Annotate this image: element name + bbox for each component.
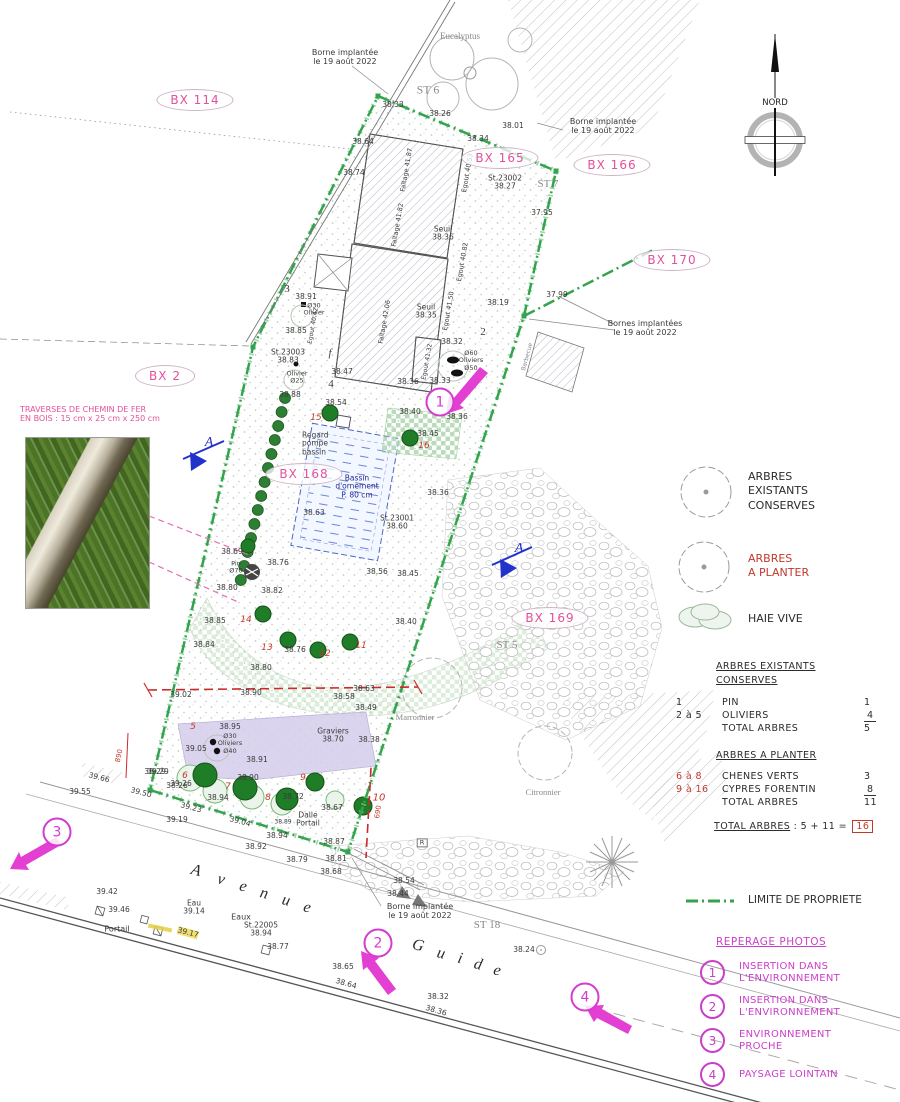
plan-label: St.23002 38.27 (488, 175, 522, 192)
plan-label: 38.40 (399, 408, 420, 416)
bx-label: BX 170 (633, 249, 710, 271)
plan-label: 38.44 (387, 890, 408, 898)
plan-label: 38.64 (352, 138, 373, 146)
pond-pump-pit (336, 415, 351, 428)
compass-label: NORD (760, 98, 790, 108)
plan-label: 38.36 (446, 413, 467, 421)
photo-legend-items: 1INSERTION DANS L'ENVIRONNEMENT2INSERTIO… (700, 960, 840, 1087)
plan-label: Portail (104, 926, 129, 935)
photo-marker-3: 3 (43, 818, 72, 847)
plan-label: Seuil 38.36 (432, 226, 453, 243)
plan-label: Olivier Ø25 (286, 371, 307, 386)
photo-legend-label: PAYSAGE LOINTAIN (739, 1069, 838, 1081)
plan-label: 38.58 (333, 693, 354, 701)
photo-legend-number-icon: 3 (700, 1028, 725, 1053)
plan-label: 38.01 (502, 122, 523, 130)
plan-label: 15 (310, 413, 321, 423)
plan-label: 38.63 (303, 509, 324, 517)
plan-label: Bornes implantées le 19 août 2022 (608, 320, 683, 338)
plan-label: Borne implantée le 19 août 2022 (387, 903, 453, 921)
photo-legend-label: INSERTION DANS L'ENVIRONNEMENT (739, 995, 840, 1018)
plan-label: St.23003 38.83 (271, 349, 305, 366)
plan-label: Eau 39.14 (183, 900, 204, 917)
photo-legend-label: ENVIRONNEMENT PROCHE (739, 1029, 831, 1052)
plan-label: Ø30 Oliviers Ø40 (218, 733, 242, 755)
plan-label: 38.94 (207, 794, 228, 802)
site-plan: Borne implantée le 19 août 2022Eucalyptu… (0, 0, 900, 1102)
plan-label: 38.87 (323, 838, 344, 846)
plan-label: 38.34 (467, 135, 488, 143)
plan-label: 13 (261, 643, 272, 653)
plan-label: 38.89 (274, 820, 291, 827)
plan-label: 38.54 (393, 877, 414, 885)
plan-label: 38.63 (353, 685, 374, 693)
plan-label: 38.90 (237, 774, 258, 782)
legend-boundary-label: LIMITE DE PROPRIETE (748, 894, 898, 908)
legend-existing-tree-icon (681, 467, 731, 517)
plan-label: 38.76 (267, 559, 288, 567)
bx-label: BX 168 (265, 463, 342, 485)
plan-label: f (328, 347, 331, 359)
plan-label: Borne implantée le 19 août 2022 (312, 49, 378, 67)
plan-label: ST 5 (497, 639, 518, 651)
plan-label: 38.40 (395, 618, 416, 626)
plan-label: 37.95 (531, 209, 552, 217)
photo-marker-1: 1 (426, 388, 455, 417)
table-row: 1PIN1 (676, 696, 898, 709)
citronnier-tree (518, 726, 572, 780)
plan-label: 39.46 (108, 906, 129, 914)
plan-label: 38.79 (286, 856, 307, 864)
stone-area-st5 (442, 468, 662, 740)
plan-label: R (417, 838, 428, 847)
plan-label: 8 (265, 793, 271, 803)
section-marker-a1 (183, 441, 224, 471)
plan-label: 38.67 (321, 804, 342, 812)
plan-label: 7 (225, 782, 231, 792)
plan-label: 38.38 (358, 736, 379, 744)
plan-label: 39.19 (166, 816, 187, 824)
plan-label: A (205, 435, 214, 451)
table-section-title: ARBRES EXISTANTS CONSERVES (716, 660, 898, 689)
photo-legend-item-3: 3ENVIRONNEMENT PROCHE (700, 1028, 840, 1053)
table-total-row: TOTAL ARBRES : 5 + 11 = 16 (714, 821, 898, 832)
neighbour-hatch-north (508, 0, 700, 162)
plan-label: Seuil 38.35 (415, 304, 436, 321)
plan-label: A (515, 541, 524, 557)
photo-inset (25, 437, 150, 609)
plan-label: 3 (284, 283, 290, 295)
plan-label: Regard pompe bassin (302, 431, 329, 456)
plan-label: 38.95 (219, 723, 240, 731)
legend-hedge-label: HAIE VIVE (748, 612, 868, 626)
plan-label: 38.91 (246, 756, 267, 764)
plan-label: 38.19 (487, 299, 508, 307)
plan-label: 38.49 (355, 704, 376, 712)
plan-label: 38.36 (427, 489, 448, 497)
plan-label: 38.33 (429, 377, 450, 385)
plan-label: ST 18 (474, 919, 500, 931)
plan-label: 16 (418, 441, 429, 451)
plan-label: 38.82 (261, 587, 282, 595)
plan-label: 38.68 (320, 868, 341, 876)
plan-label: 38.33 (382, 101, 403, 109)
plan-label: 38.32 (441, 338, 462, 346)
photo-legend-number-icon: 1 (700, 960, 725, 985)
photo-legend-item-4: 4PAYSAGE LOINTAIN (700, 1062, 840, 1087)
plan-label: 4 (328, 378, 334, 390)
bx-label: BX 2 (135, 365, 195, 387)
plan-label: 39.05 (185, 745, 206, 753)
plan-label: ST 7 (538, 178, 559, 190)
plan-label: Borne implantée le 19 août 2022 (570, 118, 636, 136)
plan-label: TRAVERSES DE CHEMIN DE FER EN BOIS : 15 … (20, 406, 160, 424)
plan-label: 38.24 (513, 946, 534, 954)
plan-label: 38.36 (397, 378, 418, 386)
plan-label: 38.90 (240, 689, 261, 697)
plan-label: 39.29 (147, 768, 168, 776)
barbecue (526, 332, 584, 392)
plan-label: 38.72 (282, 793, 303, 801)
plan-label: 38.77 (267, 943, 288, 951)
photo-legend-item-2: 2INSERTION DANS L'ENVIRONNEMENT (700, 994, 840, 1019)
plan-label: 38.26 (429, 110, 450, 118)
tree-count-table: ARBRES EXISTANTS CONSERVES1PIN12 à 5OLIV… (676, 660, 898, 832)
existing-pine (244, 564, 260, 580)
plan-label: 14 (240, 615, 251, 625)
plan-label: 5 (190, 722, 196, 732)
plan-label: 38.45 (397, 570, 418, 578)
photo-legend-item-1: 1INSERTION DANS L'ENVIRONNEMENT (700, 960, 840, 985)
plan-label: St.22005 38.94 (244, 922, 278, 939)
plan-label: 38.80 (250, 664, 271, 672)
plan-label: 38.74 (343, 169, 364, 177)
plan-label: 38.69 (221, 548, 242, 556)
plan-label: 2 (480, 326, 486, 338)
legend-existing-label: ARBRES EXISTANTS CONSERVES (748, 470, 868, 513)
plan-label: 11 (355, 641, 366, 651)
plan-label: 38.91 (295, 293, 316, 301)
plan-label: 38.45 (417, 430, 438, 438)
plan-label: Ø60 Oliviers Ø50 (459, 350, 483, 372)
plan-label: 37.99 (546, 291, 567, 299)
plan-label: 38.76 (284, 646, 305, 654)
plan-label: Dalle Portail (296, 812, 320, 829)
plan-label: 12 (319, 649, 330, 659)
plan-label: 38.32 (427, 993, 448, 1001)
legend-planted-tree-icon (679, 542, 729, 592)
table-row: 6 à 8CHENES VERTS3 (676, 770, 898, 783)
table-row: 9 à 16CYPRES FORENTIN8 (676, 783, 898, 796)
plan-label: Ø30 Olivier (303, 303, 324, 318)
plan-label: Pin Ø70 (229, 561, 242, 576)
table-section-title: ARBRES A PLANTER (716, 749, 898, 763)
table-row: TOTAL ARBRES11 (676, 796, 898, 809)
plan-label: 38.94 (266, 832, 287, 840)
plan-label: 9 (300, 773, 306, 783)
point-38-24 (537, 946, 546, 955)
table-row: 2 à 5OLIVIERS4 (676, 709, 898, 722)
plan-label: 38.88 (279, 391, 300, 399)
plan-label: 10 (373, 792, 386, 803)
stone-path-st18 (332, 836, 624, 902)
photo-legend-number-icon: 4 (700, 1062, 725, 1087)
bx-label: BX 166 (573, 154, 650, 176)
plan-label: 38.81 (325, 855, 346, 863)
plan-label: Eucalyptus (440, 31, 480, 41)
plan-label: 38.84 (193, 641, 214, 649)
plan-label: 38.47 (331, 368, 352, 376)
table-row: TOTAL ARBRES5 (676, 722, 898, 735)
plan-label: 39.02 (170, 691, 191, 699)
plan-label: 38.80 (216, 584, 237, 592)
plan-label: 39.42 (96, 888, 117, 896)
plan-label: Marronnier (396, 713, 435, 723)
bx-label: BX 169 (511, 607, 588, 629)
photo-marker-4: 4 (571, 983, 600, 1012)
plan-label: 38.92 (245, 843, 266, 851)
plan-label: 39.55 (69, 788, 90, 796)
photo-legend-number-icon: 2 (700, 994, 725, 1019)
bx-label: BX 114 (156, 89, 233, 111)
plan-label: Citronnier (526, 788, 561, 798)
photo-legend-title: REPERAGE PHOTOS (716, 936, 826, 948)
plan-label: 39.26 (170, 780, 191, 788)
plan-label: 38.56 (366, 568, 387, 576)
plan-label: 38.85 (285, 327, 306, 335)
plan-label: 38.65 (332, 963, 353, 971)
photo-marker-2: 2 (364, 929, 393, 958)
plan-label: Bassin d'ornement P. 80 cm (335, 474, 378, 499)
plan-label: ST 6 (417, 83, 440, 96)
photo-legend-label: INSERTION DANS L'ENVIRONNEMENT (739, 961, 840, 984)
plan-label: 38.85 (204, 617, 225, 625)
plan-label: Graviers 38.70 (317, 728, 349, 745)
legend-hedge-icon (679, 604, 731, 629)
bx-label: BX 165 (461, 147, 538, 169)
plan-label: St.23001 38.60 (380, 515, 414, 532)
legend-planted-label: ARBRES A PLANTER (748, 552, 868, 581)
plan-label: 38.54 (325, 399, 346, 407)
